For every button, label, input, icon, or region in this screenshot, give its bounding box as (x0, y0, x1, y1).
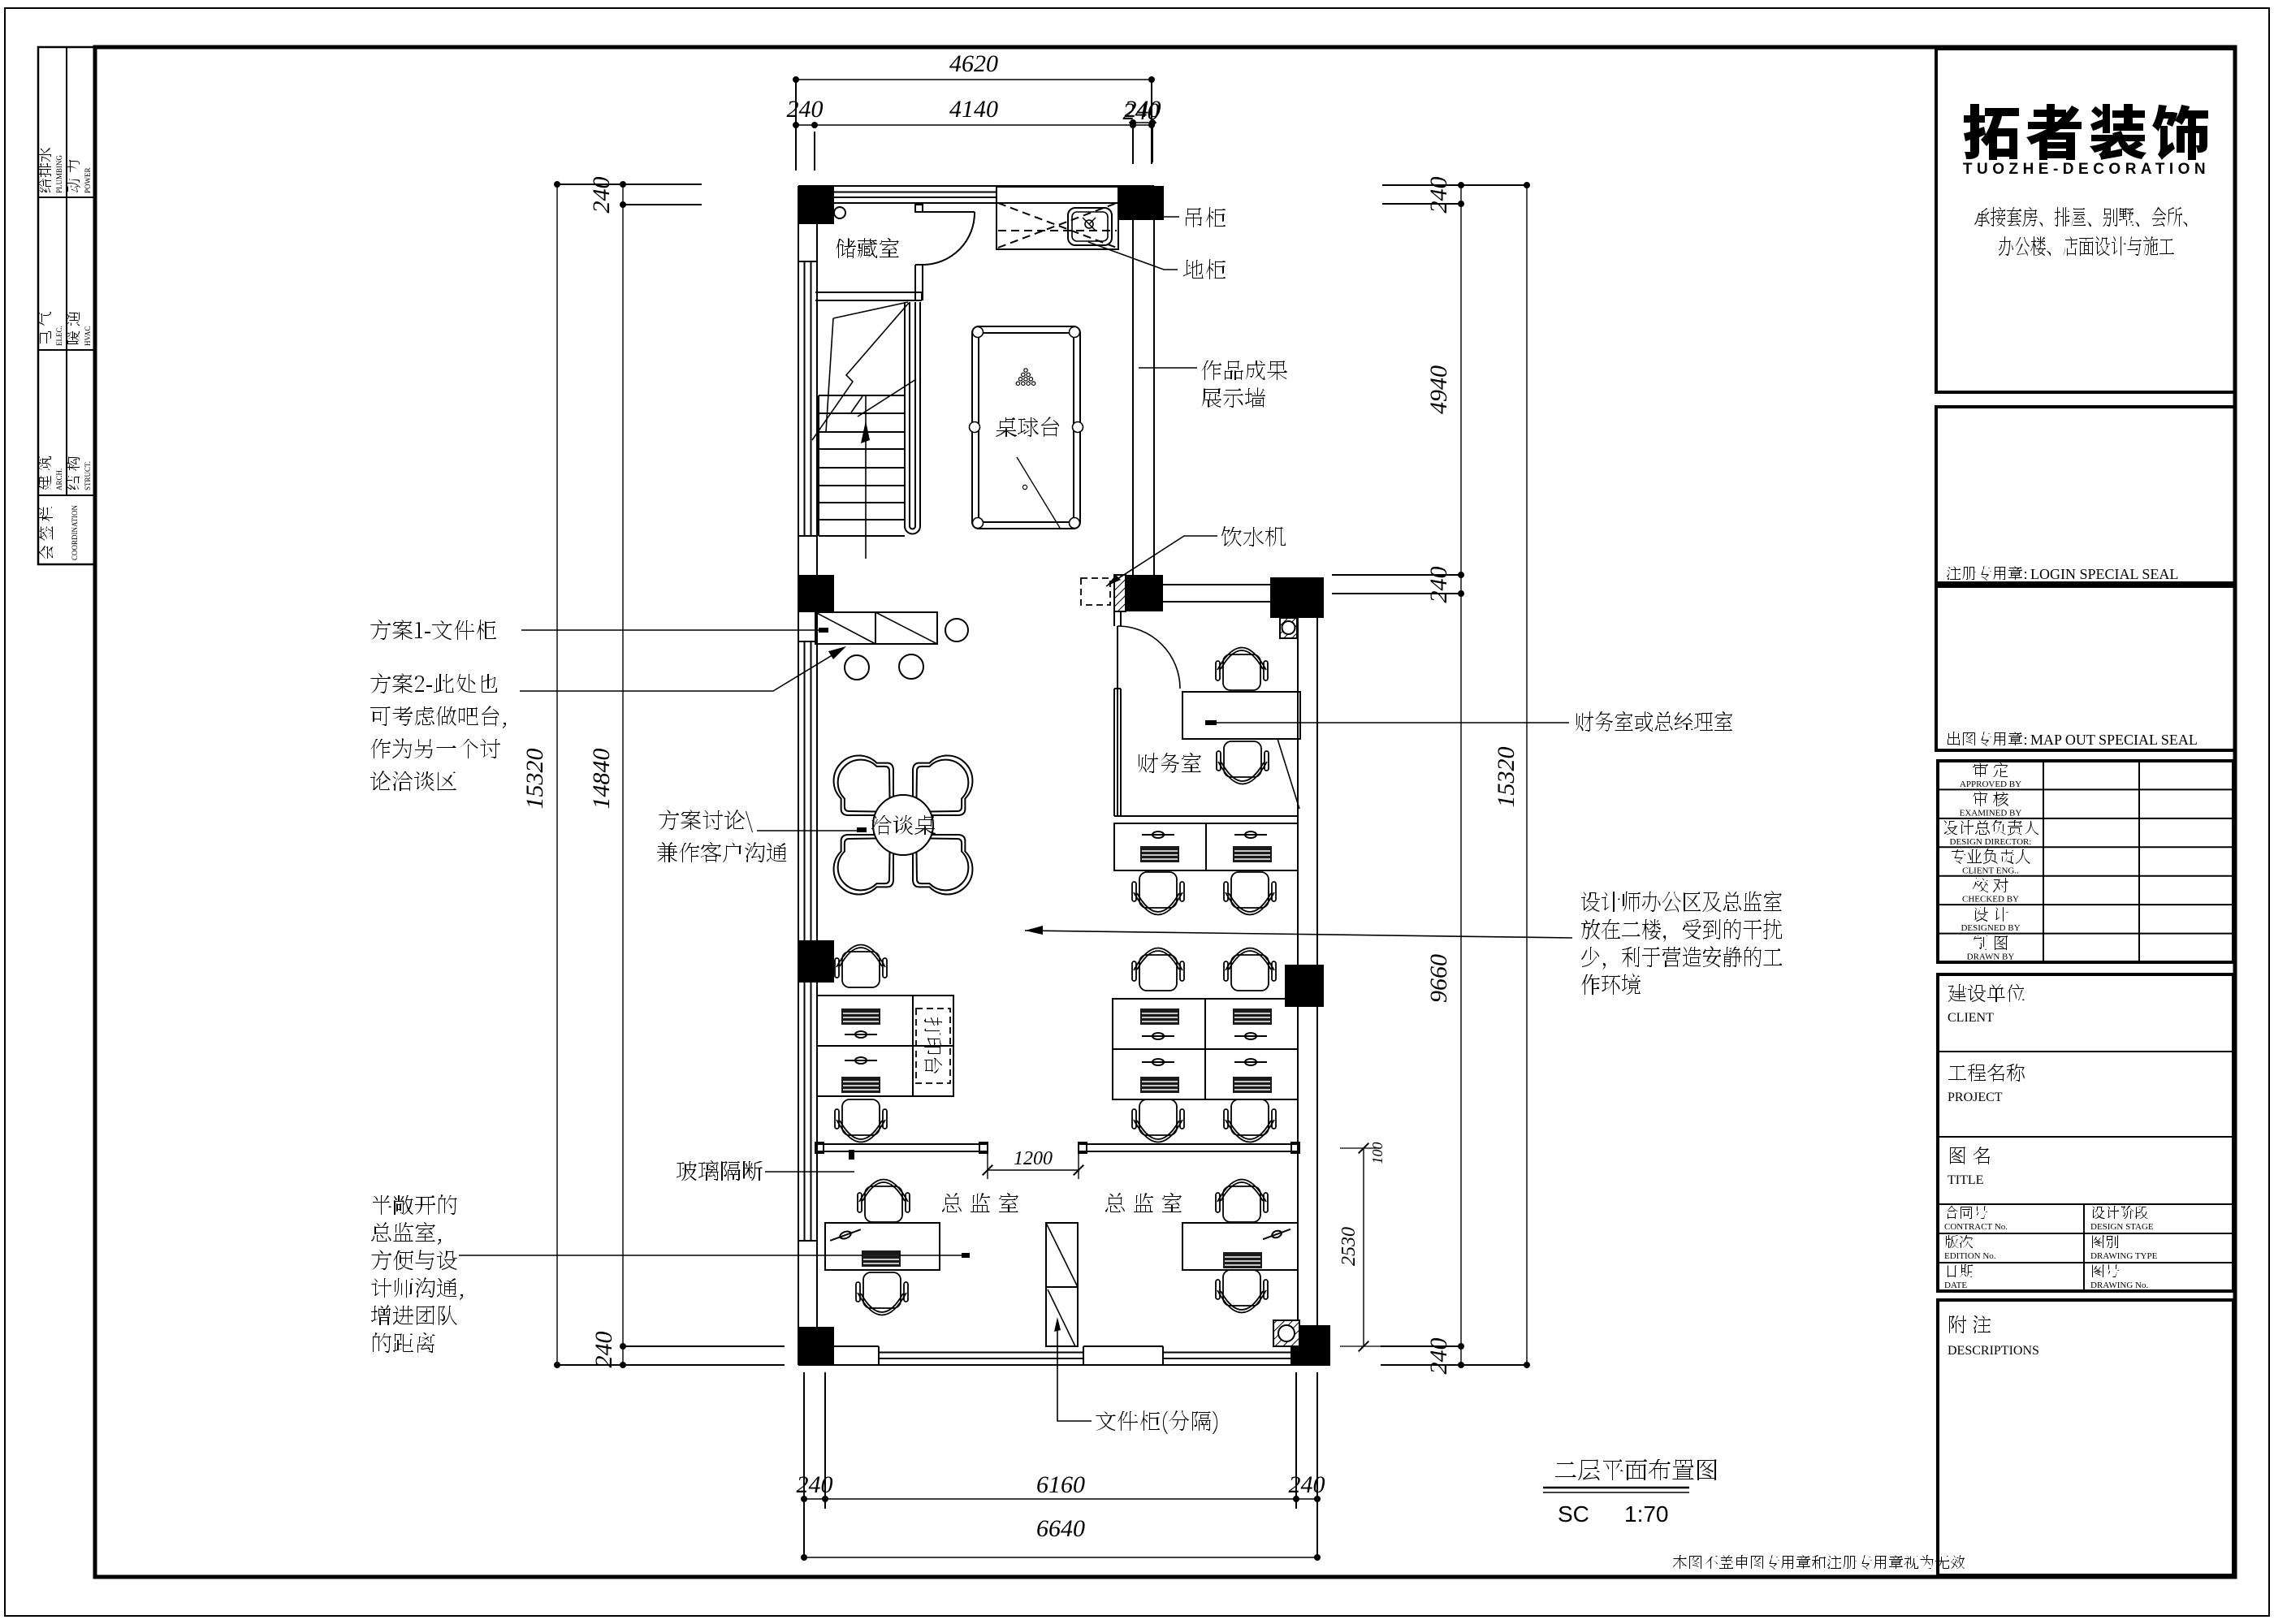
svg-text:APPROVED BY: APPROVED BY (1960, 780, 2021, 789)
svg-text:6640: 6640 (1036, 1515, 1085, 1542)
svg-text:PLUMBING: PLUMBING (55, 154, 63, 193)
svg-text:MAP OUT SPECIAL SEAL: MAP OUT SPECIAL SEAL (2030, 732, 2198, 748)
svg-text:DESCRIPTIONS: DESCRIPTIONS (1948, 1344, 2039, 1358)
svg-text:CLIENT ENG..: CLIENT ENG.. (1962, 866, 2019, 875)
svg-text:TUOZHE-DECORATION: TUOZHE-DECORATION (1963, 161, 2210, 178)
svg-text:4940: 4940 (1425, 365, 1452, 414)
svg-text:ARCH.: ARCH. (55, 469, 63, 490)
svg-text:240: 240 (797, 1471, 833, 1498)
svg-text:1:70: 1:70 (1624, 1501, 1669, 1527)
svg-text:DATE: DATE (1944, 1281, 1967, 1290)
svg-text:EDITION No.: EDITION No. (1944, 1251, 1996, 1261)
svg-text:EXAMINED BY: EXAMINED BY (1960, 808, 2022, 818)
svg-text:15320: 15320 (1493, 747, 1520, 808)
svg-text:15320: 15320 (521, 749, 548, 810)
svg-text:9660: 9660 (1425, 954, 1452, 1003)
svg-text:240: 240 (1289, 1471, 1325, 1498)
svg-text:6160: 6160 (1036, 1471, 1085, 1498)
svg-text:2530: 2530 (1338, 1227, 1360, 1266)
svg-text:DRAWING No.: DRAWING No. (2090, 1281, 2148, 1290)
svg-text:240: 240 (588, 177, 615, 214)
svg-text:4140: 4140 (949, 96, 998, 123)
svg-text:14840: 14840 (588, 749, 615, 810)
svg-text:CONTRACT No.: CONTRACT No. (1944, 1222, 2008, 1232)
svg-text:240: 240 (590, 1332, 617, 1368)
svg-text:4620: 4620 (949, 50, 998, 77)
svg-text:1200: 1200 (1014, 1148, 1053, 1169)
svg-text:DESIGN STAGE: DESIGN STAGE (2090, 1222, 2154, 1232)
svg-text:DESIGNED BY: DESIGNED BY (1961, 923, 2020, 933)
svg-text:HVAC: HVAC (84, 326, 92, 346)
svg-text:STRUCT.: STRUCT. (84, 461, 92, 490)
svg-text:240: 240 (1425, 1338, 1452, 1375)
svg-text:DRAWN BY: DRAWN BY (1967, 952, 2015, 962)
svg-text:240: 240 (787, 96, 824, 123)
svg-text:DESIGN DIRECTOR:: DESIGN DIRECTOR: (1950, 837, 2032, 847)
svg-text:240: 240 (1425, 177, 1452, 214)
svg-text:CHECKED BY: CHECKED BY (1962, 895, 2019, 905)
svg-text:CLIENT: CLIENT (1948, 1011, 1994, 1025)
svg-text:100: 100 (1369, 1142, 1386, 1164)
svg-text:240: 240 (1425, 567, 1452, 603)
svg-text:SC: SC (1558, 1501, 1589, 1527)
svg-text:ELEC.: ELEC. (55, 326, 63, 346)
svg-text:COORDINATION: COORDINATION (71, 505, 79, 560)
svg-text:PROJECT: PROJECT (1948, 1091, 2003, 1104)
svg-text:DRAWING TYPE: DRAWING TYPE (2090, 1251, 2158, 1261)
svg-text:POWER: POWER (84, 168, 92, 194)
svg-text:LOGIN SPECIAL SEAL: LOGIN SPECIAL SEAL (2030, 566, 2178, 582)
svg-text:TITLE: TITLE (1948, 1173, 1983, 1187)
